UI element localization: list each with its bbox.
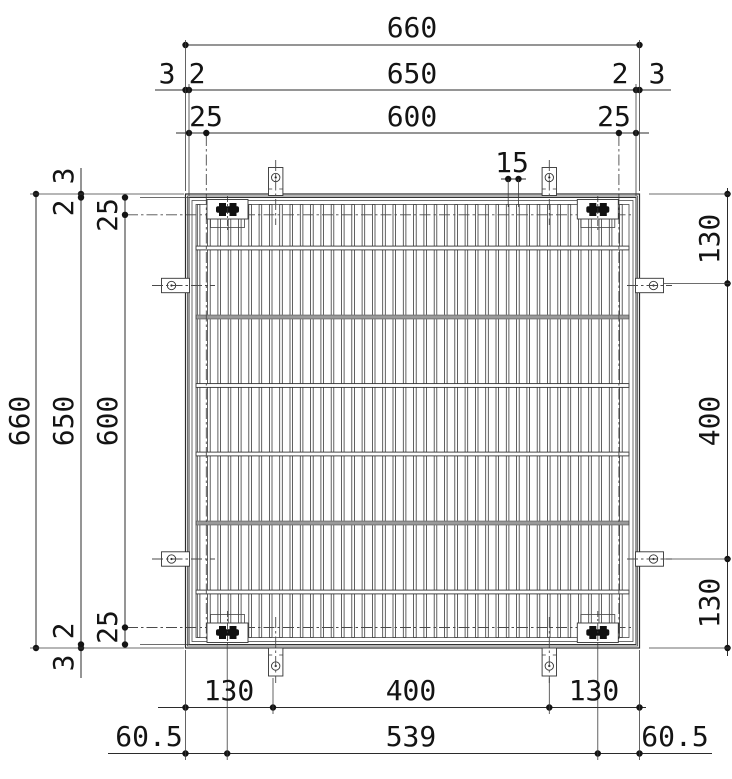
drawing-canvas: 660 3 2 650 2 3 25 600 25 15 660 3 2 650… [0, 0, 732, 779]
grating-panel-plan-drawing: 660 3 2 650 2 3 25 600 25 15 660 3 2 650… [0, 0, 732, 779]
dim-top-opening: 600 [387, 100, 438, 133]
bearing-bar [300, 205, 303, 638]
dim-top-right-outer: 3 [649, 57, 666, 90]
bearing-bar [249, 205, 252, 638]
dim-left-bottom-outer: 3 [47, 655, 80, 672]
bearing-bar [568, 205, 571, 638]
bearing-bar [208, 205, 211, 638]
dim-top-overall: 660 [387, 11, 438, 44]
bearing-bar [548, 205, 551, 638]
bearing-bar [506, 205, 509, 638]
bearing-bar [372, 205, 375, 638]
cross-bar [196, 590, 629, 594]
cross-bar [196, 521, 629, 525]
bearing-bar [599, 205, 602, 638]
dim-top-left-outer: 3 [159, 57, 176, 90]
clamp-bolt-head [589, 626, 596, 639]
dim-top-frame: 650 [387, 57, 438, 90]
bearing-bar [424, 205, 427, 638]
dim-top-offset-right: 25 [597, 100, 631, 133]
bearing-bar [537, 205, 540, 638]
clamp-bolt-head [219, 203, 226, 216]
clamp-bolt-head [589, 203, 596, 216]
bearing-bar [496, 205, 499, 638]
bearing-bar [589, 205, 592, 638]
bearing-bar [342, 205, 345, 638]
bearing-bar [352, 205, 355, 638]
dim-bottom-right: 130 [569, 674, 620, 707]
cross-bar [196, 384, 629, 388]
dim-right-middle: 400 [693, 396, 726, 447]
dim-anchor-left: 60.5 [115, 720, 182, 753]
bearing-bar [486, 205, 489, 638]
bearing-bar [311, 205, 314, 638]
dim-left-offset-bottom: 25 [91, 610, 124, 644]
clamp-bolt-head [219, 626, 226, 639]
dim-anchor-span: 539 [386, 720, 437, 753]
bearing-bar [259, 205, 262, 638]
dim-top-offset-left: 25 [189, 100, 223, 133]
bearing-bar [434, 205, 437, 638]
dim-right-top: 130 [693, 214, 726, 265]
dim-left-top-inner: 2 [47, 200, 80, 217]
bearing-bar [475, 205, 478, 638]
bearing-bar [228, 205, 231, 638]
clamp-bolt-nut [230, 203, 237, 216]
dim-bottom-center: 400 [386, 674, 437, 707]
dim-left-opening: 600 [91, 396, 124, 447]
clamp-bolt-nut [600, 203, 607, 216]
cross-bar [196, 315, 629, 319]
dim-bar-pitch: 15 [495, 146, 529, 179]
bearing-bar [414, 205, 417, 638]
bearing-bar [280, 205, 283, 638]
bearing-bar [578, 205, 581, 638]
bearing-bar [239, 205, 242, 638]
bearing-bar [465, 205, 468, 638]
bearing-bar [197, 205, 200, 638]
bearing-bar [393, 205, 396, 638]
bearing-bar [527, 205, 530, 638]
bearing-bar [455, 205, 458, 638]
clamp-bolt-nut [230, 626, 237, 639]
dim-left-frame: 650 [47, 396, 80, 447]
bearing-bar [218, 205, 221, 638]
clamp-bolt-nut [600, 626, 607, 639]
bearing-bar [558, 205, 561, 638]
cross-bar [196, 246, 629, 250]
cross-bar [196, 452, 629, 456]
dim-left-top-outer: 3 [47, 168, 80, 185]
bearing-bar [269, 205, 272, 638]
bearing-bar [403, 205, 406, 638]
bearing-bar [620, 205, 623, 638]
bearing-bar [445, 205, 448, 638]
dim-left-bottom-inner: 2 [47, 623, 80, 640]
bearing-bar [321, 205, 324, 638]
dim-top-left-inner: 2 [189, 57, 206, 90]
dim-top-right-inner: 2 [612, 57, 629, 90]
tab-bolt-center [275, 176, 277, 178]
bearing-bar [362, 205, 365, 638]
dim-anchor-right: 60.5 [641, 720, 708, 753]
dim-left-offset-top: 25 [91, 198, 124, 232]
bearing-bar [517, 205, 520, 638]
bearing-bar [331, 205, 334, 638]
bearing-bar [383, 205, 386, 638]
dim-bottom-left: 130 [204, 674, 255, 707]
bearing-bar [290, 205, 293, 638]
bearing-bar [609, 205, 612, 638]
dim-right-bottom: 130 [693, 578, 726, 629]
dim-left-overall: 660 [3, 396, 36, 447]
tab-bolt-center [548, 176, 550, 178]
